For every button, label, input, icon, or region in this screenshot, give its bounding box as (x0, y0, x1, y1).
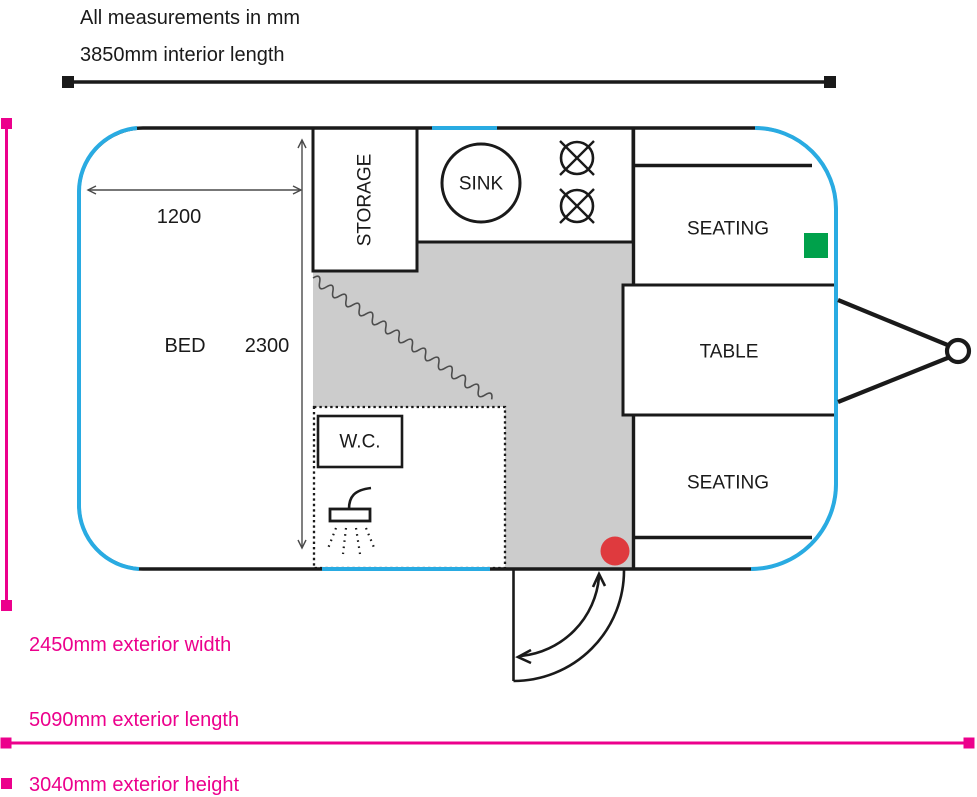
exterior-width-dimension: 2450mm exterior width (1, 118, 231, 656)
sink-label: SINK (459, 174, 504, 195)
seating-rear-area: SEATING (633, 473, 812, 538)
outline-accent-left (79, 128, 139, 569)
kitchen-area: SINK (417, 128, 633, 242)
bed-width-value: 1200 (157, 206, 202, 228)
bed-length-value: 2300 (245, 335, 290, 357)
seating-rear-label: SEATING (687, 473, 769, 494)
bed-width-dimension: 1200 (88, 186, 301, 228)
hitch-coupling (947, 340, 969, 362)
interior-length-dimension (62, 76, 836, 88)
storage-area: STORAGE (313, 128, 417, 271)
bed-length-dimension: 2300 (245, 140, 306, 548)
bed-label: BED (164, 335, 205, 357)
exterior-length-label: 5090mm exterior length (29, 709, 239, 731)
table-label: TABLE (700, 342, 759, 363)
exterior-length-dimension: 5090mm exterior length (1, 709, 975, 749)
exterior-height-bullet (1, 778, 12, 789)
caravan-floorplan: All measurements in mm 3850mm interior l… (0, 0, 977, 797)
table-area: TABLE (623, 285, 836, 415)
seating-front-area: SEATING (633, 166, 812, 240)
red-marker (601, 537, 630, 566)
door-swing-arrow (521, 577, 599, 656)
tow-hitch (838, 300, 969, 402)
dimension-endpoint-left (62, 76, 74, 88)
exterior-height-dimension: 3040mm exterior height (1, 774, 240, 796)
measurements-note: All measurements in mm (80, 7, 300, 29)
wc-label: W.C. (339, 432, 380, 453)
dimension-endpoint-right (824, 76, 836, 88)
exterior-width-label: 2450mm exterior width (29, 634, 231, 656)
door-swing-arc (514, 570, 625, 681)
green-marker (804, 233, 828, 258)
interior-length-label: 3850mm interior length (80, 44, 285, 66)
exterior-height-label: 3040mm exterior height (29, 774, 240, 796)
entry-door (514, 570, 625, 681)
seating-front-label: SEATING (687, 219, 769, 240)
storage-label: STORAGE (355, 154, 376, 247)
wc-room: W.C. (314, 407, 505, 568)
